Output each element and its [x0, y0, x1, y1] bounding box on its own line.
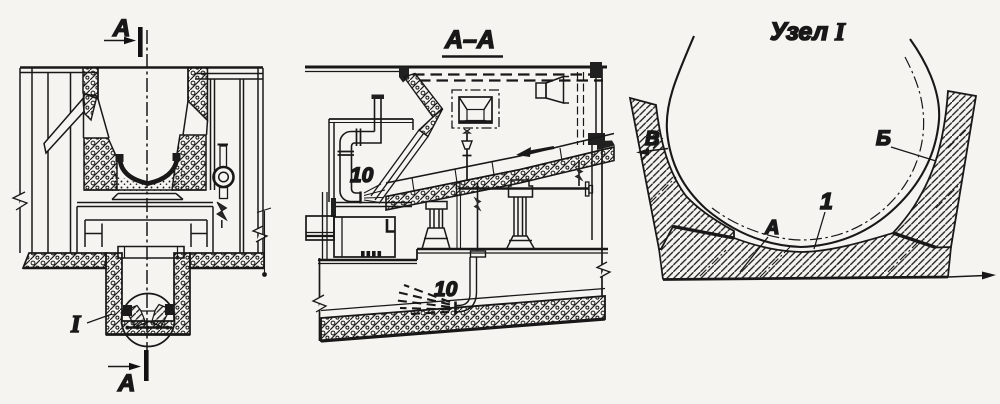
- svg-text:A: A: [112, 15, 130, 42]
- svg-text:Б: Б: [876, 127, 891, 150]
- svg-text:В: В: [645, 128, 659, 150]
- svg-text:10: 10: [434, 278, 458, 301]
- svg-text:1: 1: [820, 188, 833, 214]
- svg-text:A–A: A–A: [444, 26, 495, 54]
- svg-text:I: I: [70, 312, 82, 338]
- svg-text:Узел I: Узел I: [770, 18, 846, 46]
- svg-text:A: A: [117, 370, 135, 397]
- svg-text:10: 10: [350, 164, 374, 187]
- svg-text:A: A: [764, 217, 779, 239]
